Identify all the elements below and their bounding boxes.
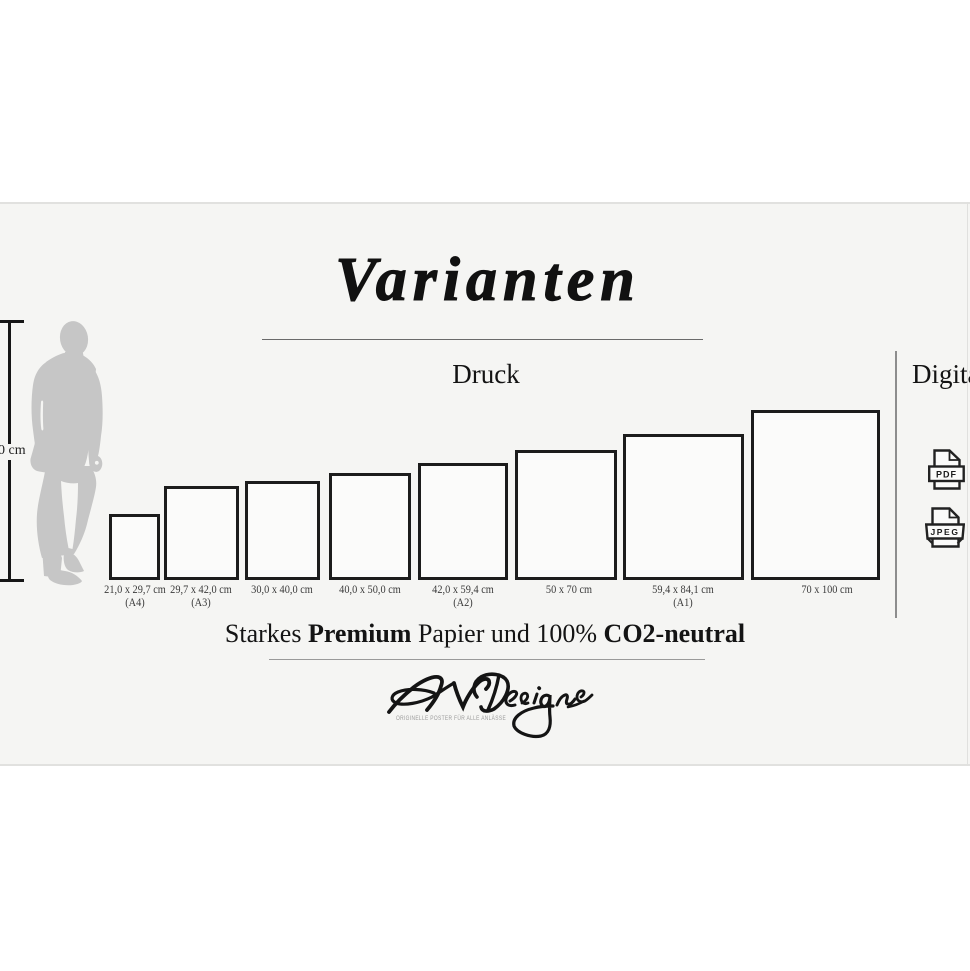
svg-text:JPEG: JPEG: [930, 527, 959, 537]
svg-text:PDF: PDF: [936, 470, 957, 480]
